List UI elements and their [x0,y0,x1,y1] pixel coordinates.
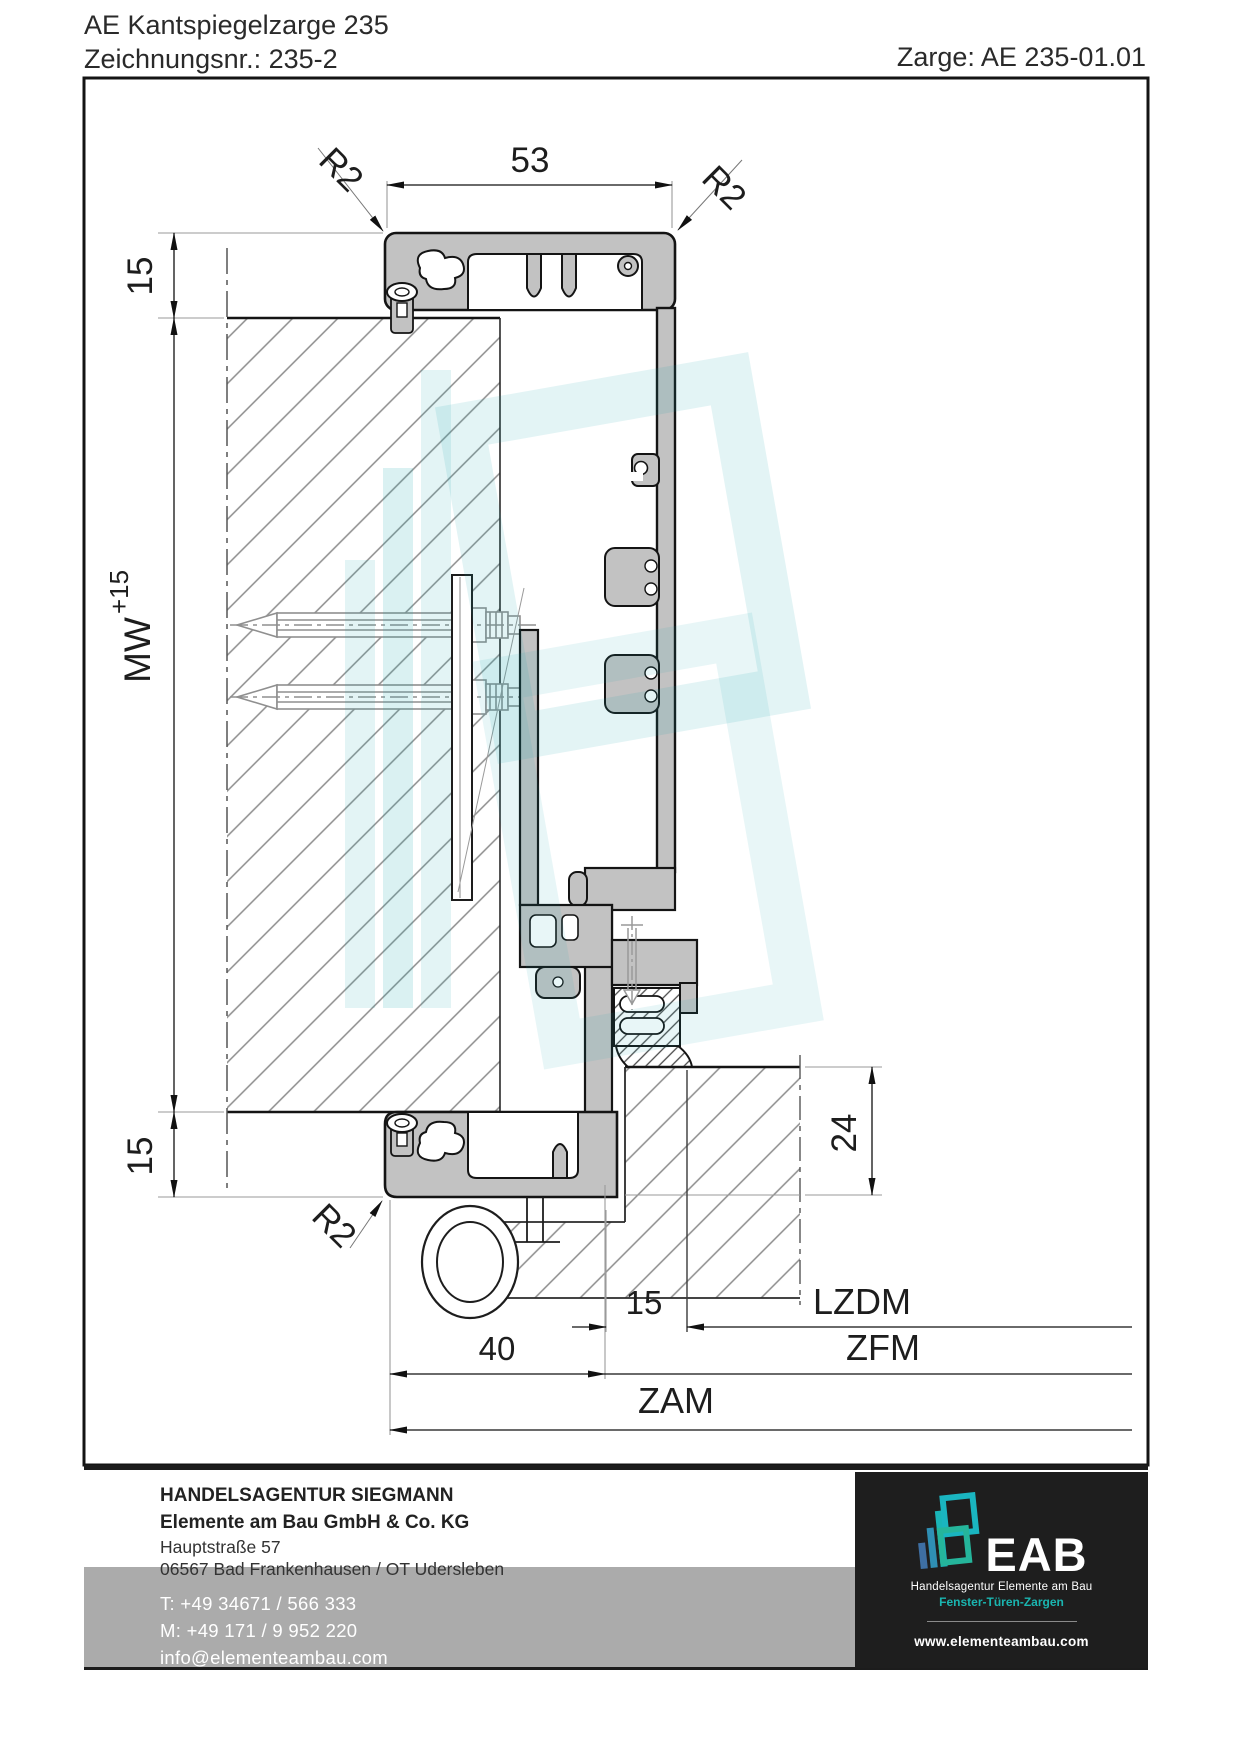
dim-15-chain: 15 [626,1284,663,1321]
eab-buildings-icon [915,1492,981,1575]
frame-sill-profile [385,1112,617,1197]
dim-lzdm: LZDM [813,1281,911,1322]
company-name: HANDELSAGENTUR SIEGMANN [160,1482,469,1509]
logo-divider [927,1621,1077,1622]
eab-logo-text: EAB [985,1535,1087,1575]
fixing-screw-bottom [387,1114,417,1156]
dim-15-top: 15 [121,257,160,296]
frame-head-profile [385,233,675,310]
dim-24: 24 [825,1114,864,1153]
footer-contact: T: +49 34671 / 566 333 M: +49 171 / 9 95… [160,1590,388,1671]
contact-phone: T: +49 34671 / 566 333 [160,1590,388,1617]
eab-logo-box: EAB Handelsagentur Elemente am Bau Fenst… [855,1472,1148,1668]
fixing-screw-top [387,283,417,333]
dim-mw: MW [117,617,158,683]
company-entity: Elemente am Bau GmbH & Co. KG [160,1509,469,1536]
technical-drawing-page: { "header": { "title": "AE Kantspiegelza… [0,0,1240,1754]
footer: HANDELSAGENTUR SIEGMANN Elemente am Bau … [84,1465,1148,1665]
footer-company: HANDELSAGENTUR SIEGMANN Elemente am Bau … [160,1482,469,1536]
logo-website: www.elementeambau.com [914,1634,1089,1649]
contact-mobile: M: +49 171 / 9 952 220 [160,1617,388,1644]
dim-zam: ZAM [638,1380,714,1421]
contact-email: info@elementeambau.com [160,1644,388,1671]
address-city: 06567 Bad Frankenhausen / OT Udersleben [160,1558,504,1580]
web-hook-clip [631,454,659,486]
dim-40: 40 [479,1330,516,1367]
dim-mw-sup: +15 [104,570,134,614]
dim-15-bottom: 15 [121,1137,160,1176]
footer-address: Hauptstraße 57 06567 Bad Frankenhausen /… [160,1536,504,1580]
dim-r2-top-left: R2 [312,140,371,199]
profile-step [585,868,675,910]
address-street: Hauptstraße 57 [160,1536,504,1558]
dim-zfm: ZFM [846,1327,920,1368]
dim-r2-top-right: R2 [695,158,754,217]
dim-53-label: 53 [511,141,550,180]
dim-r2-bottom-left: R2 [305,1196,364,1255]
web-clip-block-1 [605,548,659,606]
logo-tagline: Handelsagentur Elemente am Bau [911,1581,1093,1593]
logo-subtagline: Fenster-Türen-Zargen [939,1595,1064,1609]
